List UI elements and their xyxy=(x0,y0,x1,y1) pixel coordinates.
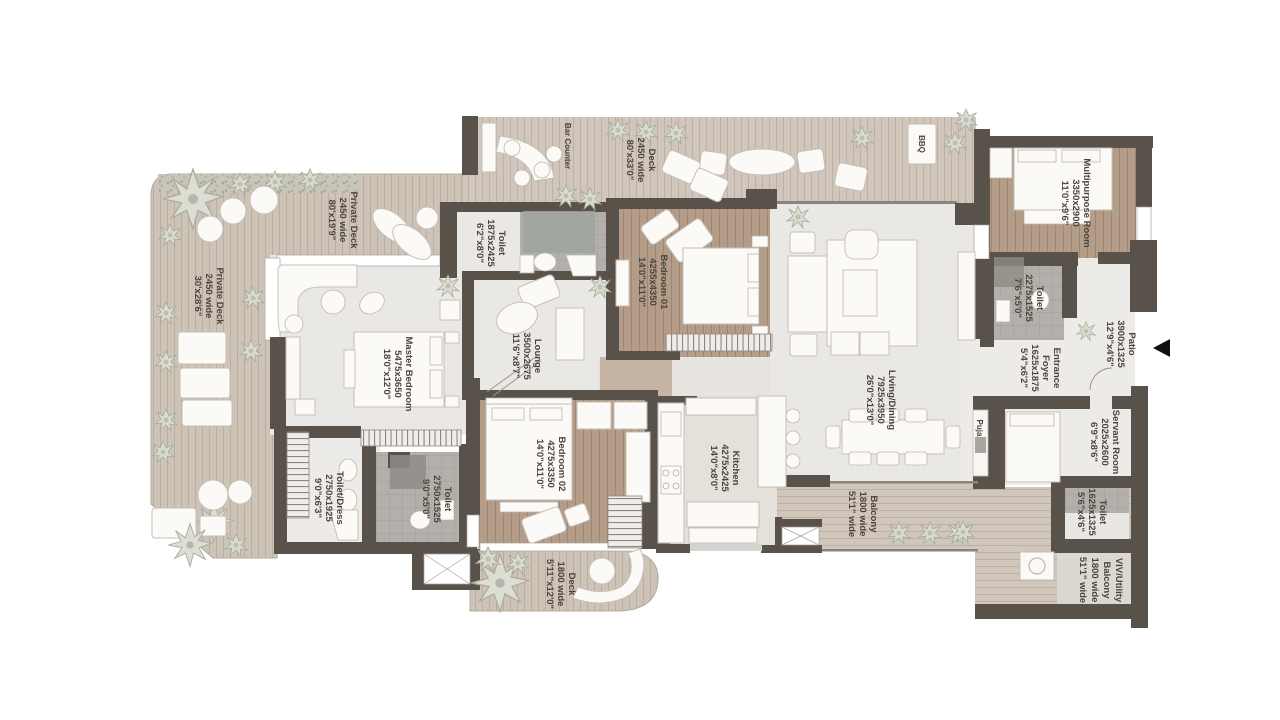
svg-text:Bedroom 01: Bedroom 01 xyxy=(658,255,669,311)
svg-text:Foyer: Foyer xyxy=(1040,355,1051,381)
svg-text:Toilet/Dress: Toilet/Dress xyxy=(334,471,345,525)
svg-text:Deck: Deck xyxy=(566,573,577,596)
svg-text:Toilet: Toilet xyxy=(1097,500,1108,525)
svg-text:1800 wide: 1800 wide xyxy=(555,562,566,607)
svg-text:Puja: Puja xyxy=(975,420,984,437)
svg-text:51'1" wide: 51'1" wide xyxy=(846,491,857,537)
svg-text:7925x3950: 7925x3950 xyxy=(875,376,886,424)
svg-text:5'6"x4'6": 5'6"x4'6" xyxy=(1075,492,1086,532)
svg-text:6'9"x8'6": 6'9"x8'6" xyxy=(1088,422,1099,462)
svg-text:80'x19'9": 80'x19'9" xyxy=(326,200,337,241)
svg-text:12'9"x4'6": 12'9"x4'6" xyxy=(1104,321,1115,366)
svg-text:Balcony: Balcony xyxy=(868,496,879,534)
svg-text:26'0"x13'0": 26'0"x13'0" xyxy=(864,375,875,426)
svg-text:18'0"x12'0": 18'0"x12'0" xyxy=(381,349,392,400)
svg-text:4275x3350: 4275x3350 xyxy=(545,440,556,488)
svg-text:Kitchen: Kitchen xyxy=(730,451,741,486)
svg-text:14'0"x11'0": 14'0"x11'0" xyxy=(534,439,545,489)
svg-text:6'2"x8'0": 6'2"x8'0" xyxy=(474,223,485,263)
svg-text:4275x2425: 4275x2425 xyxy=(719,444,730,492)
svg-text:5'11"x12'0": 5'11"x12'0" xyxy=(544,559,555,609)
svg-text:7'6"x5'0": 7'6"x5'0" xyxy=(1012,278,1023,318)
svg-text:14'0"x11'0": 14'0"x11'0" xyxy=(636,257,647,307)
svg-text:BBQ: BBQ xyxy=(917,135,926,153)
svg-text:2450 wide: 2450 wide xyxy=(203,274,214,319)
svg-text:Lounge: Lounge xyxy=(532,339,543,373)
svg-text:Private Deck: Private Deck xyxy=(214,267,225,325)
svg-text:1800 wide: 1800 wide xyxy=(857,492,868,537)
svg-text:2750x1925: 2750x1925 xyxy=(323,474,334,522)
svg-text:Patio: Patio xyxy=(1126,332,1137,355)
svg-text:Servant Room: Servant Room xyxy=(1110,410,1121,474)
svg-text:1625x1325: 1625x1325 xyxy=(1086,488,1097,536)
svg-text:5'4"x6'2": 5'4"x6'2" xyxy=(1018,348,1029,388)
svg-text:Multipurpose Room: Multipurpose Room xyxy=(1081,158,1092,247)
svg-text:11'0"x9'6": 11'0"x9'6" xyxy=(1059,181,1070,226)
svg-text:Balcony: Balcony xyxy=(1101,562,1112,600)
svg-text:9'0"x6'3": 9'0"x6'3" xyxy=(312,478,323,518)
svg-text:30'x28'6": 30'x28'6" xyxy=(192,276,203,317)
svg-text:Entrance: Entrance xyxy=(1051,348,1062,389)
svg-text:Toilet: Toilet xyxy=(496,231,507,256)
svg-text:14'0"x8'0": 14'0"x8'0" xyxy=(708,445,719,490)
svg-text:3500x2675: 3500x2675 xyxy=(521,332,532,380)
svg-text:4255x4350: 4255x4350 xyxy=(647,258,658,306)
svg-text:9'0"x5'0": 9'0"x5'0" xyxy=(420,479,431,519)
svg-text:3900x1325: 3900x1325 xyxy=(1115,320,1126,368)
svg-text:Toilet: Toilet xyxy=(442,487,453,512)
svg-text:2275x1525: 2275x1525 xyxy=(1023,274,1034,322)
svg-text:Bedroom 02: Bedroom 02 xyxy=(556,437,567,492)
svg-text:51'1" wide: 51'1" wide xyxy=(1077,557,1088,603)
svg-text:2750x1525: 2750x1525 xyxy=(431,475,442,523)
svg-text:80'x33'0": 80'x33'0" xyxy=(624,140,635,181)
svg-text:2450 wide: 2450 wide xyxy=(337,198,348,243)
svg-text:Bar Counter: Bar Counter xyxy=(563,123,572,169)
svg-text:5475x3650: 5475x3650 xyxy=(392,350,403,398)
svg-text:1875x2425: 1875x2425 xyxy=(485,219,496,267)
svg-text:Deck: Deck xyxy=(646,149,657,172)
svg-text:Private Deck: Private Deck xyxy=(348,191,359,249)
svg-text:VIV/Utility: VIV/Utility xyxy=(1113,558,1124,603)
svg-text:1800 wide: 1800 wide xyxy=(1089,558,1100,603)
svg-text:1625x1875: 1625x1875 xyxy=(1029,344,1040,392)
svg-text:Master Bedroom: Master Bedroom xyxy=(403,337,414,412)
svg-text:2025x2600: 2025x2600 xyxy=(1099,418,1110,466)
svg-text:Toilet: Toilet xyxy=(1034,286,1045,311)
svg-text:Living/Dining: Living/Dining xyxy=(886,370,897,430)
svg-text:11'6"x8'7": 11'6"x8'7" xyxy=(510,334,521,379)
svg-text:3350x2900: 3350x2900 xyxy=(1070,179,1081,227)
svg-text:2450 wide: 2450 wide xyxy=(635,138,646,183)
